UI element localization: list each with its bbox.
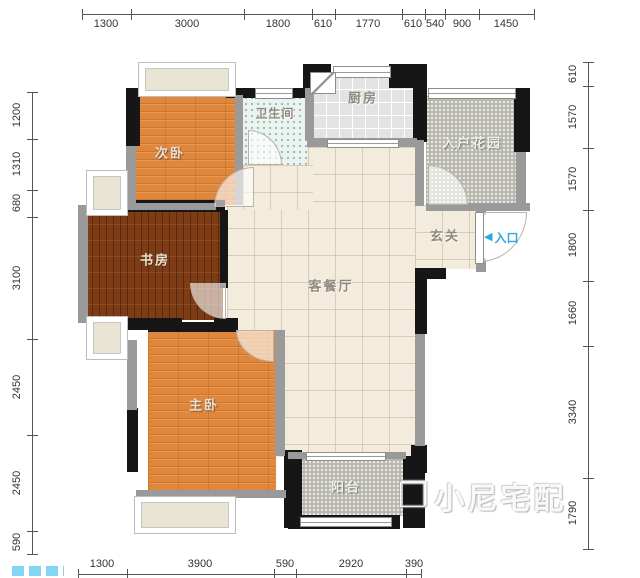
window xyxy=(306,452,386,461)
entrance-label: 入口 xyxy=(494,229,518,246)
wall-segment xyxy=(127,340,137,410)
window xyxy=(255,88,293,99)
dimension-tick xyxy=(445,9,446,20)
dim-label: 900 xyxy=(453,18,471,30)
room-label-master-bedroom: 主卧 xyxy=(189,395,219,414)
window xyxy=(327,139,399,148)
dim-label: 1300 xyxy=(90,558,114,570)
window xyxy=(333,66,391,78)
dimension-tick xyxy=(27,554,38,555)
bay-window xyxy=(86,316,128,360)
dim-label: 590 xyxy=(11,533,23,551)
dimension-tick xyxy=(583,148,594,149)
wall-segment xyxy=(128,203,216,210)
window xyxy=(428,88,516,99)
dimension-tick xyxy=(583,346,594,347)
dim-label: 2450 xyxy=(11,375,23,399)
dimension-line xyxy=(82,14,534,15)
dim-label: 3340 xyxy=(567,400,579,424)
dim-label: 610 xyxy=(567,65,579,83)
dimension-tick xyxy=(296,569,297,578)
room-label-foyer: 玄关 xyxy=(430,226,460,245)
dimension-tick xyxy=(583,86,594,87)
wall-segment xyxy=(514,88,530,152)
dim-label: 3100 xyxy=(11,266,23,290)
dim-label: 1200 xyxy=(11,103,23,127)
dim-label: 1570 xyxy=(567,105,579,129)
dimension-tick xyxy=(244,9,245,20)
dim-label: 3000 xyxy=(175,18,199,30)
wall-segment xyxy=(413,66,427,142)
dimension-line xyxy=(32,92,33,554)
dimension-tick xyxy=(27,435,38,436)
dim-label: 540 xyxy=(426,18,444,30)
dimension-tick xyxy=(27,217,38,218)
dimension-tick xyxy=(479,9,480,20)
room-label-balcony: 阳台 xyxy=(331,477,361,496)
dim-label: 610 xyxy=(314,18,332,30)
dim-label: 2450 xyxy=(11,471,23,495)
room-label-secondary-bedroom: 次卧 xyxy=(155,143,185,162)
floorplan-canvas: 次卧 卫生间 厨房 入户花园 书房 客餐厅 玄关 主卧 阳台 ◀ 入口 1300… xyxy=(0,0,640,578)
dimension-tick xyxy=(27,531,38,532)
dim-label: 1770 xyxy=(356,18,380,30)
dimension-tick xyxy=(534,9,535,20)
wall-segment xyxy=(516,152,526,208)
cropped-logo-artifact xyxy=(12,566,64,576)
bay-window xyxy=(134,496,236,534)
dimension-tick xyxy=(27,92,38,93)
dimension-tick xyxy=(421,569,422,578)
folding-door xyxy=(310,72,336,94)
dim-label: 1310 xyxy=(11,152,23,176)
wall-segment xyxy=(305,88,314,140)
dimension-tick xyxy=(27,339,38,340)
bay-window xyxy=(138,62,236,97)
room-label-bathroom: 卫生间 xyxy=(255,105,294,122)
watermark: ❐ 小尼宅配 xyxy=(398,474,566,518)
wall-segment xyxy=(220,210,228,288)
dimension-tick xyxy=(27,190,38,191)
dim-label: 1660 xyxy=(567,301,579,325)
dim-label: 1790 xyxy=(567,501,579,525)
window xyxy=(300,517,392,527)
dimension-tick xyxy=(583,478,594,479)
door-leaf xyxy=(475,212,484,264)
dimension-tick xyxy=(583,549,594,550)
dimension-tick xyxy=(335,9,336,20)
dimension-tick xyxy=(78,569,79,578)
wall-segment xyxy=(415,334,425,446)
wall-segment xyxy=(148,322,236,332)
room-label-living-dining: 客餐厅 xyxy=(308,276,353,295)
watermark-logo-icon: ❐ xyxy=(398,476,428,516)
wall-segment xyxy=(127,408,138,472)
dimension-tick xyxy=(406,569,407,578)
dim-label: 1800 xyxy=(567,233,579,257)
room-label-study: 书房 xyxy=(140,250,170,269)
dimension-line xyxy=(78,574,422,575)
wall-segment xyxy=(415,140,424,206)
dim-label: 390 xyxy=(405,558,423,570)
wall-segment xyxy=(418,268,446,279)
dim-label: 1450 xyxy=(494,18,518,30)
entrance-marker: ◀ 入口 xyxy=(484,229,518,246)
dimension-line xyxy=(588,62,589,549)
wall-segment xyxy=(78,205,88,323)
dim-label: 1800 xyxy=(266,18,290,30)
dim-label: 2920 xyxy=(339,558,363,570)
room-label-kitchen: 厨房 xyxy=(348,88,378,107)
dim-label: 1570 xyxy=(567,167,579,191)
dimension-tick xyxy=(27,139,38,140)
dimension-tick xyxy=(583,281,594,282)
room-label-entry-garden: 入户花园 xyxy=(442,133,502,152)
dimension-tick xyxy=(583,62,594,63)
dimension-tick xyxy=(131,9,132,20)
entrance-arrow-icon: ◀ xyxy=(484,232,492,243)
dim-label: 610 xyxy=(404,18,422,30)
bay-window xyxy=(86,170,128,216)
dim-label: 590 xyxy=(276,558,294,570)
dimension-tick xyxy=(127,569,128,578)
wall-segment xyxy=(275,330,285,456)
dimension-tick xyxy=(82,9,83,20)
dimension-tick xyxy=(583,210,594,211)
dim-label: 680 xyxy=(11,194,23,212)
dimension-tick xyxy=(274,569,275,578)
watermark-text: 小尼宅配 xyxy=(434,474,566,518)
dim-label: 3900 xyxy=(188,558,212,570)
dim-label: 1300 xyxy=(94,18,118,30)
